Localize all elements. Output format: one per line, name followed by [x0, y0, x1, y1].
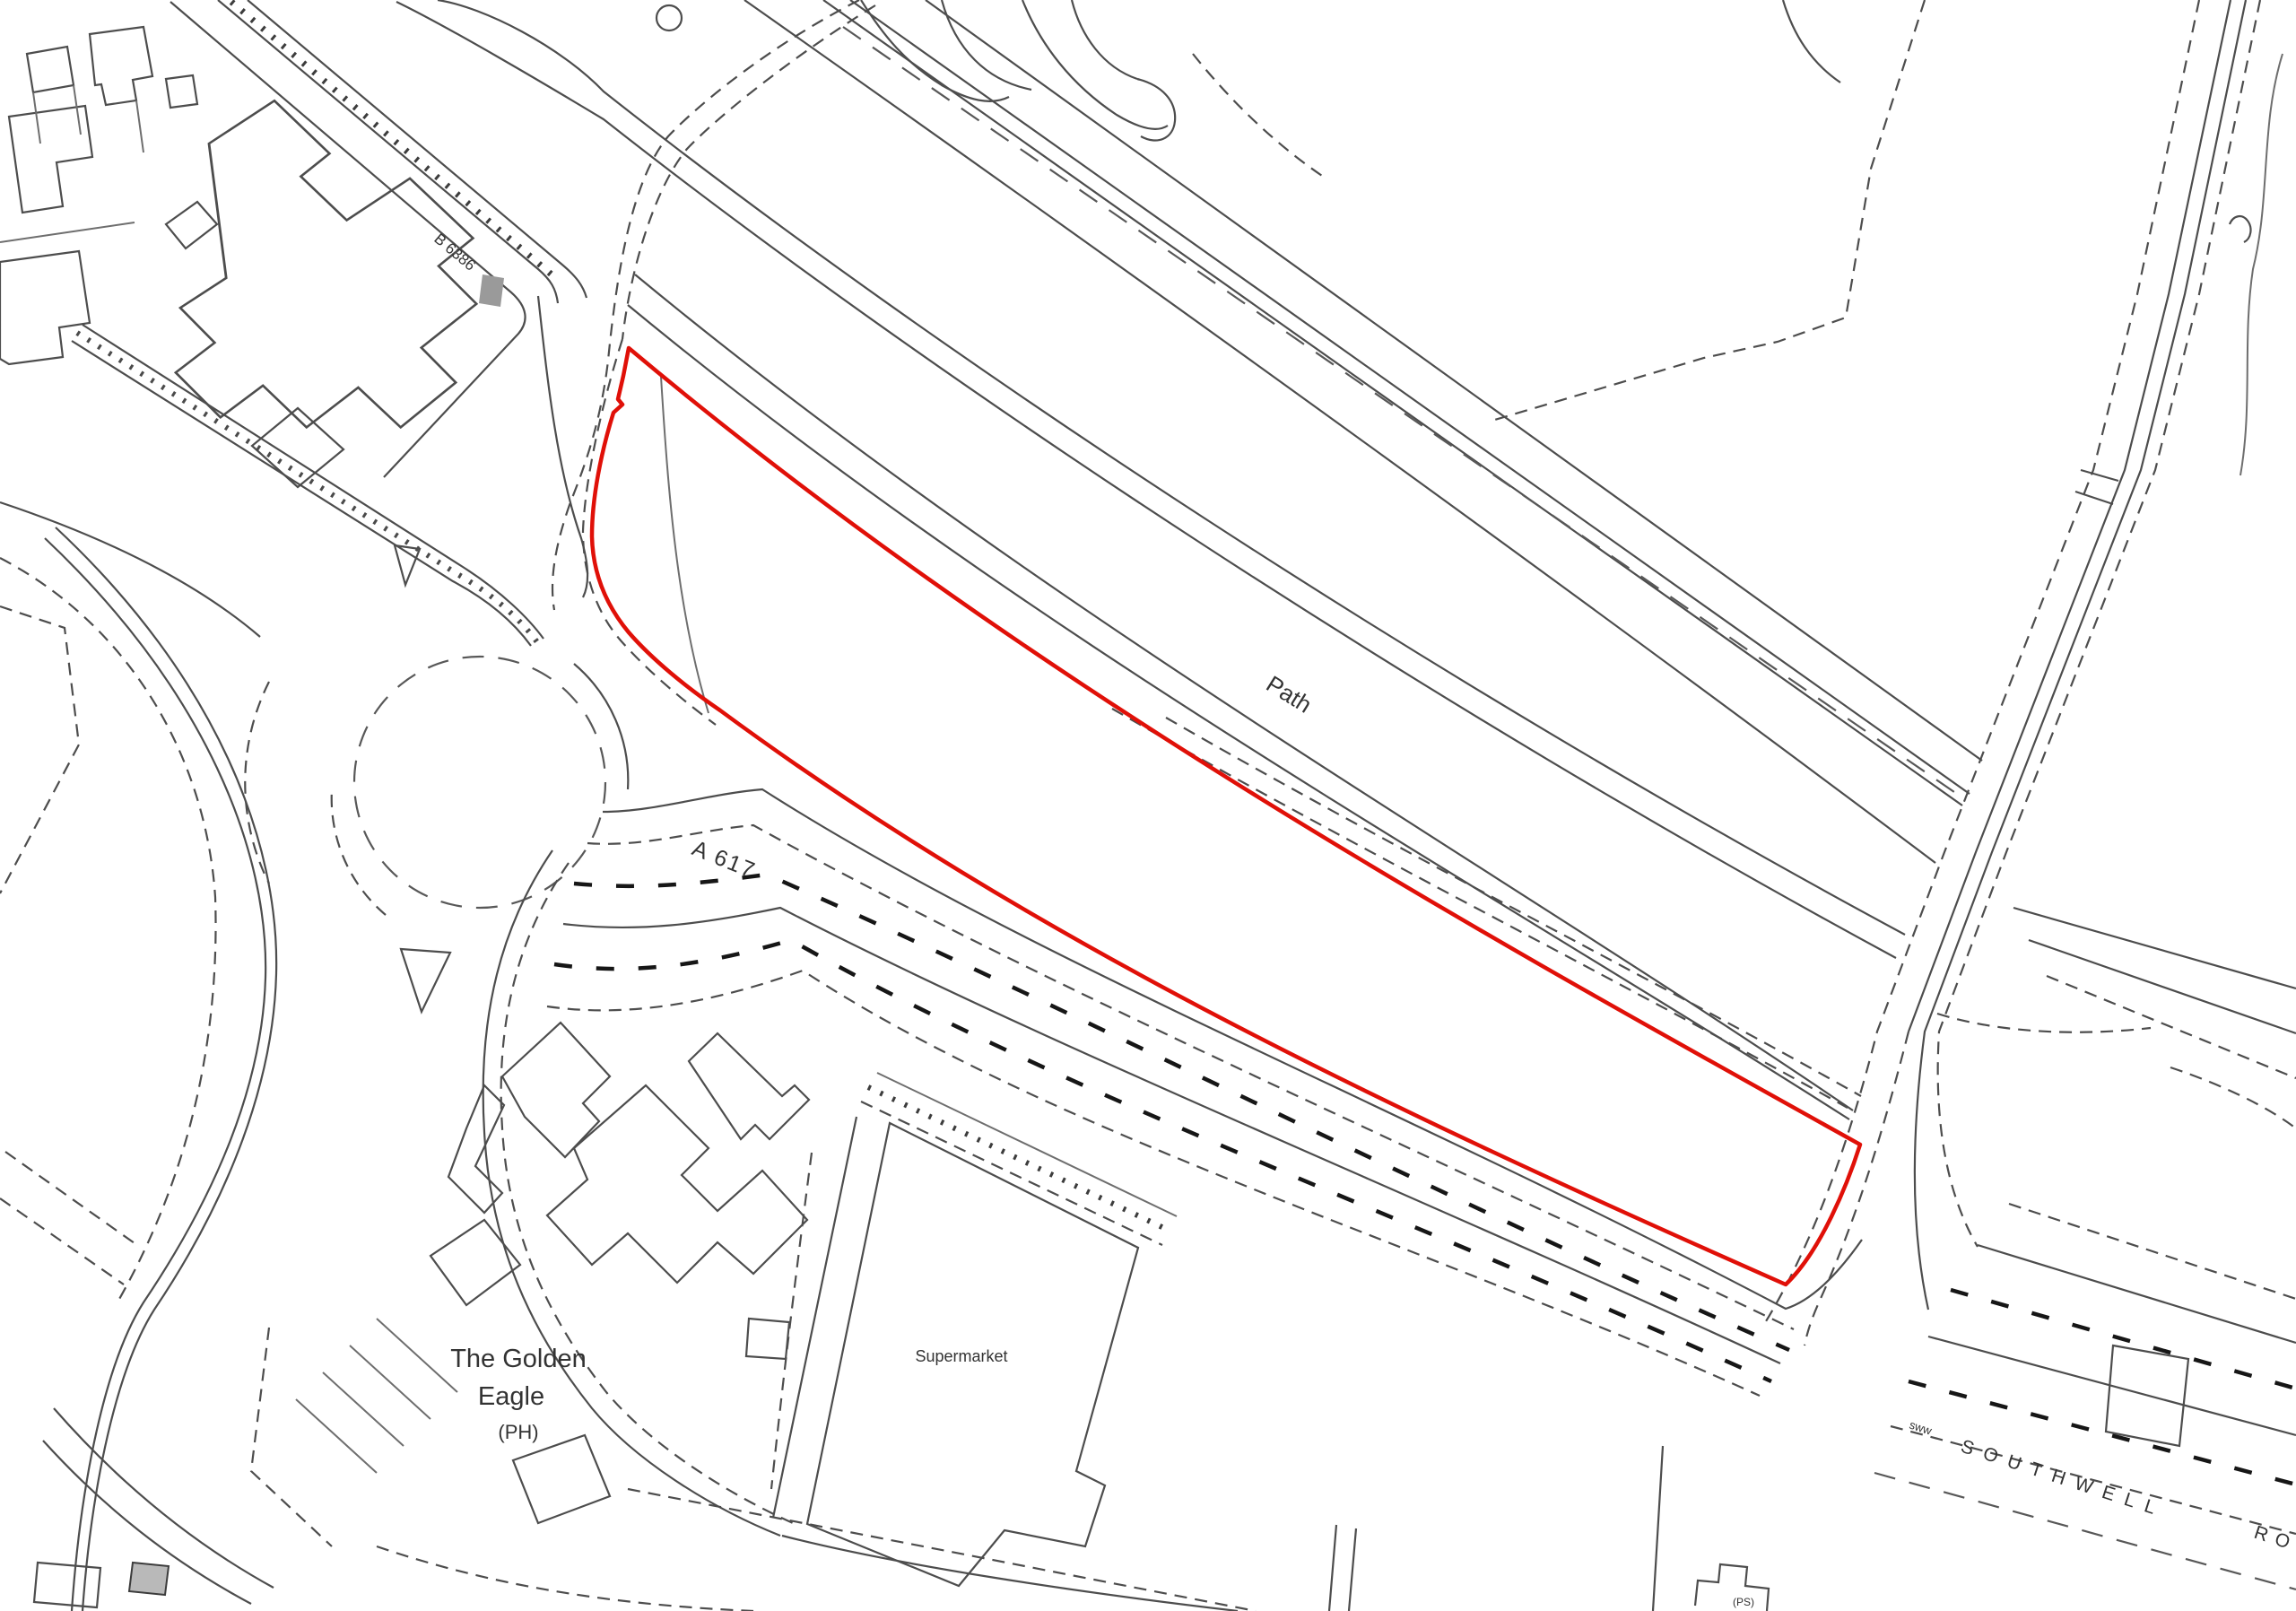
- svg-text:Eagle: Eagle: [478, 1382, 544, 1411]
- svg-text:(PS): (PS): [1733, 1596, 1754, 1608]
- svg-text:(PH): (PH): [498, 1421, 538, 1443]
- svg-text:The Golden: The Golden: [450, 1345, 587, 1373]
- svg-text:Supermarket: Supermarket: [915, 1347, 1007, 1365]
